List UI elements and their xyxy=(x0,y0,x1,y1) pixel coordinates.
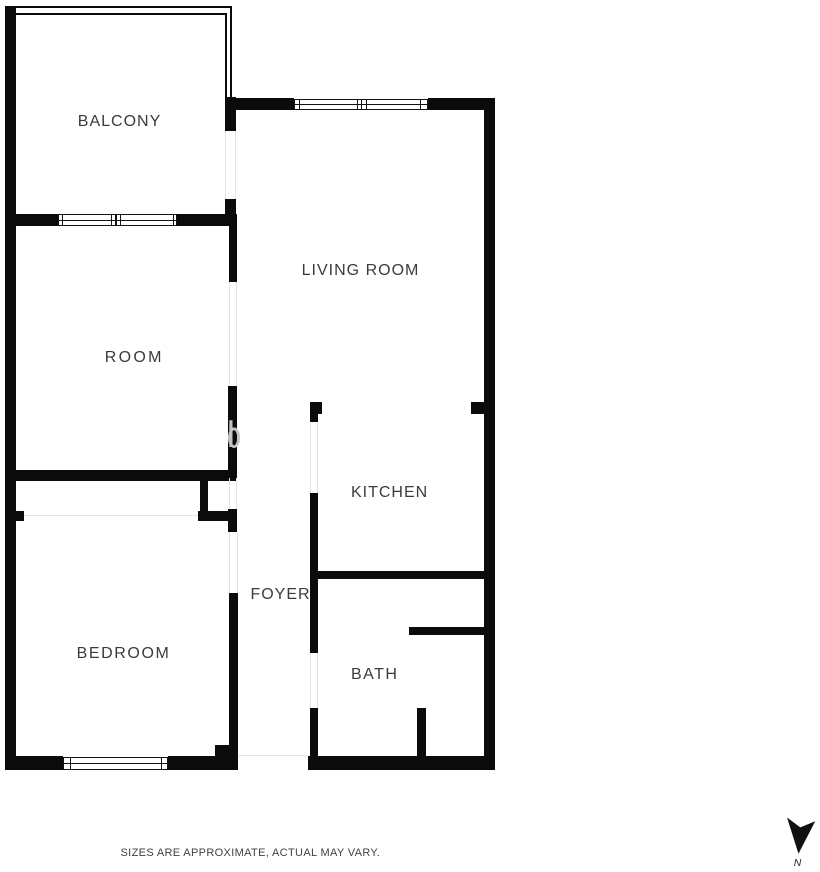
svg-text:N: N xyxy=(794,857,802,869)
